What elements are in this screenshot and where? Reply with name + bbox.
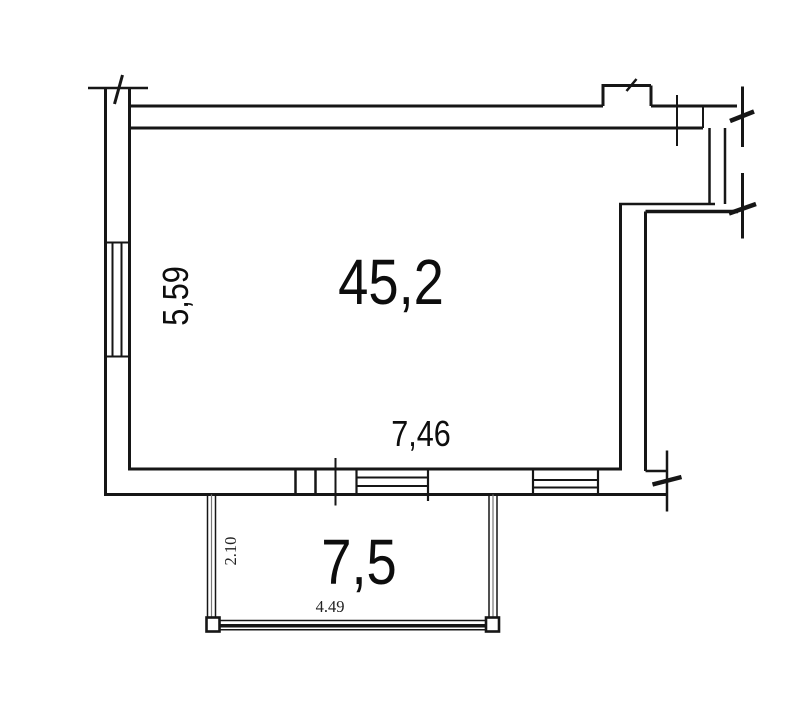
balcony-right-glazing: [489, 495, 497, 619]
break-slash-icon: [115, 75, 123, 104]
main-room-width-label: 7,46: [391, 415, 451, 455]
balcony-railing: [219, 621, 487, 630]
bottom-window-1: [357, 469, 429, 501]
floor-plan-drawing: 45,2 7,46 5,59 7,5 4.49 2.10: [0, 0, 807, 723]
main-room-depth-label: 5,59: [157, 266, 197, 326]
shaft-walls: [619, 87, 743, 239]
left-window: [104, 243, 131, 357]
wall-break-mark-top-left: [88, 75, 148, 104]
main-room-area-label: 45,2: [338, 246, 444, 318]
balcony-corner-post-right: [486, 618, 499, 632]
balcony-corner-post-left: [207, 618, 220, 632]
balcony-width-label: 4.49: [316, 597, 345, 616]
balcony-left-glazing: [208, 495, 216, 619]
balcony-depth-label: 2.10: [221, 537, 240, 566]
bottom-window-2: [533, 469, 598, 495]
floor-plan-page: 45,2 7,46 5,59 7,5 4.49 2.10: [0, 0, 807, 723]
balcony-area-label: 7,5: [321, 526, 397, 598]
wall-break-mark-bottom-right: [653, 451, 682, 512]
labels: 45,2 7,46 5,59 7,5 4.49 2.10: [157, 246, 451, 616]
